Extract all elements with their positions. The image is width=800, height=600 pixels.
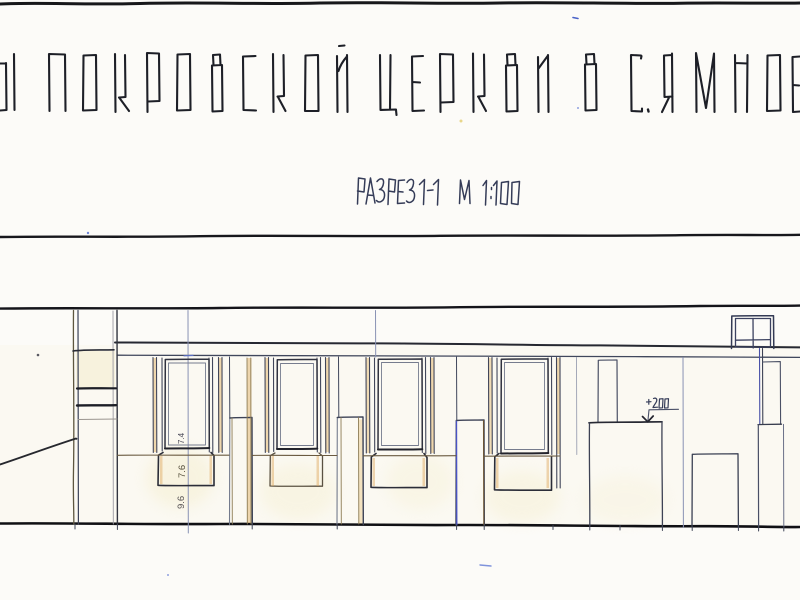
svg-text:7.6: 7.6: [177, 465, 188, 478]
svg-text:9.6: 9.6: [176, 496, 187, 509]
svg-text:7.4: 7.4: [177, 432, 186, 444]
